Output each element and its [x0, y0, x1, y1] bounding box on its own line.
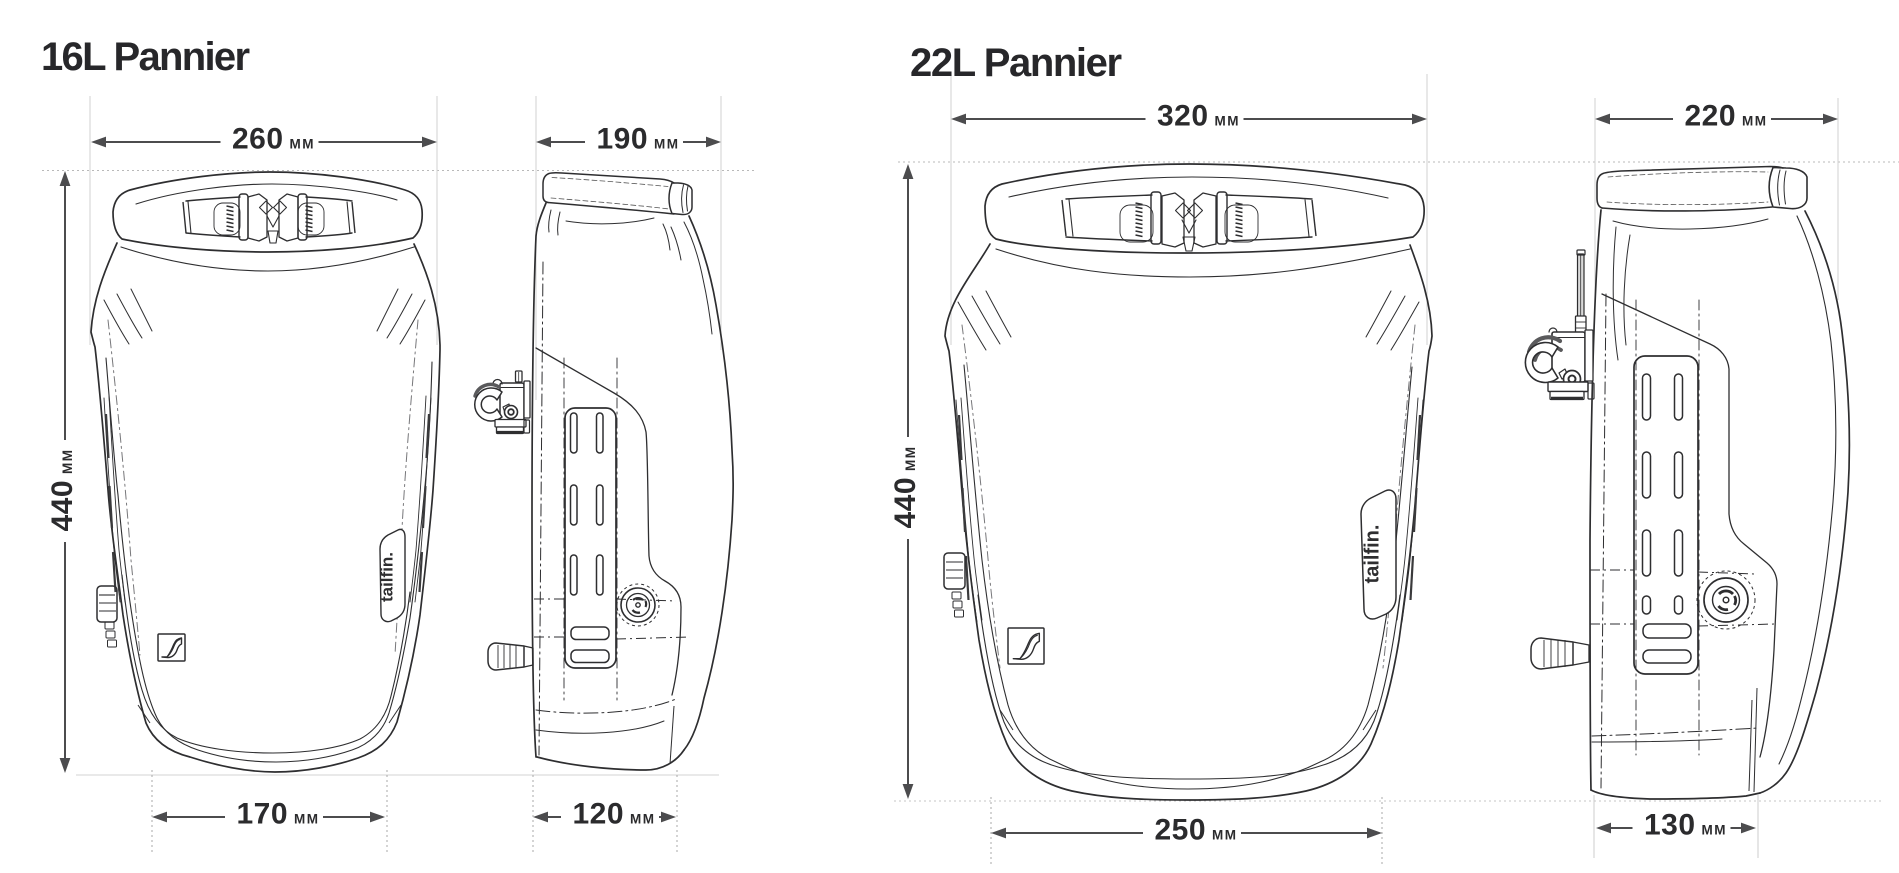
svg-text:tailfin.: tailfin. — [378, 552, 397, 602]
svg-text:22L Pannier: 22L Pannier — [910, 41, 1121, 85]
svg-text:tailfin.: tailfin. — [1362, 525, 1384, 584]
svg-text:16L Pannier: 16L Pannier — [41, 35, 249, 79]
